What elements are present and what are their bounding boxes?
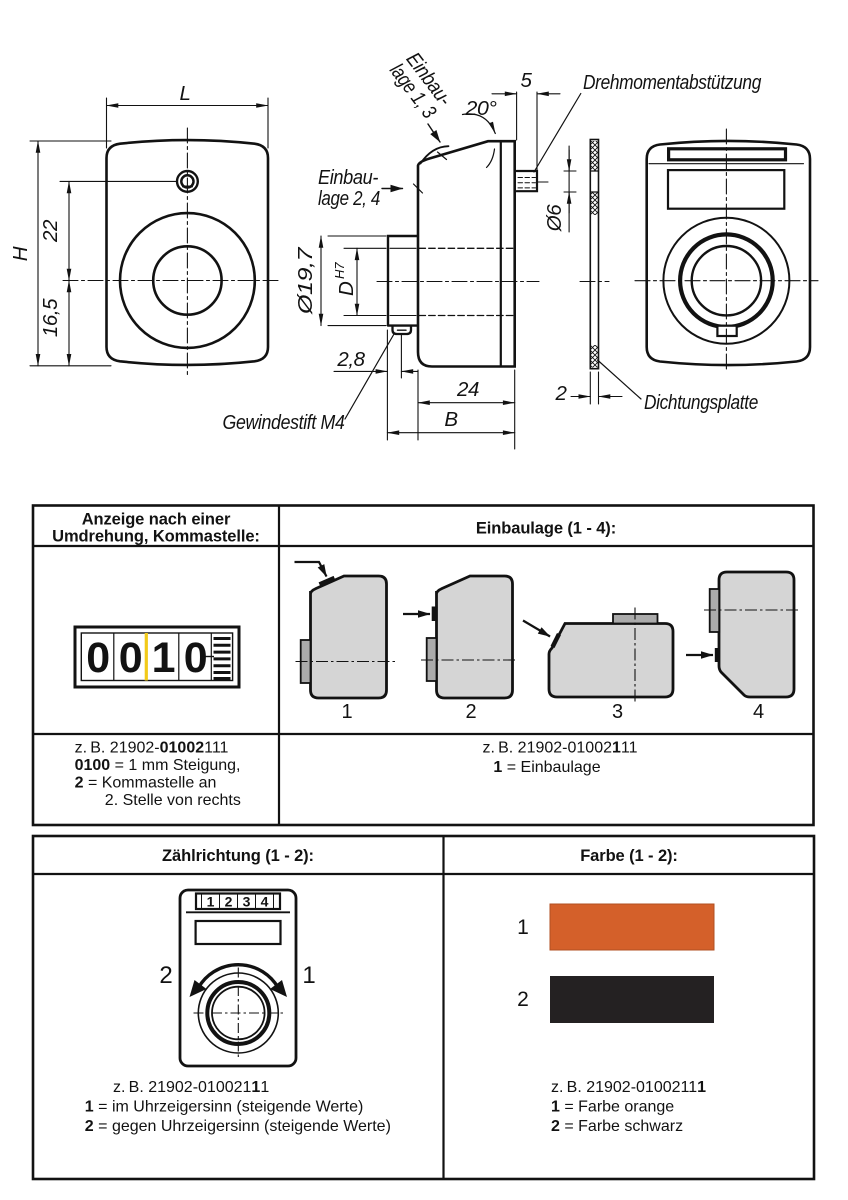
svg-text:2: 2 (517, 988, 529, 1011)
svg-text:Anzeige nach einer: Anzeige nach einer (82, 511, 231, 529)
svg-text:D: D (335, 281, 358, 296)
svg-text:Drehmomentabstützung: Drehmomentabstützung (583, 71, 762, 94)
svg-text:1: 1 (152, 634, 176, 682)
svg-text:z. B. 21902-01002111: z. B. 21902-01002111 (75, 740, 229, 757)
svg-text:Ø6: Ø6 (543, 204, 566, 233)
svg-text:1 = im Uhrzeigersinn (steigend: 1 = im Uhrzeigersinn (steigende Werte) (85, 1099, 364, 1116)
svg-text:Gewindestift M4: Gewindestift M4 (223, 411, 345, 434)
svg-text:2: 2 (159, 962, 172, 989)
svg-text:2,8: 2,8 (336, 348, 365, 371)
svg-text:1: 1 (302, 962, 315, 989)
svg-text:Einbau-: Einbau- (318, 166, 379, 189)
svg-text:Farbe (1 - 2):: Farbe (1 - 2): (580, 847, 678, 865)
svg-text:2: 2 (225, 894, 233, 910)
svg-text:16,5: 16,5 (39, 298, 62, 337)
svg-text:3: 3 (243, 894, 251, 910)
svg-text:2 = Farbe schwarz: 2 = Farbe schwarz (551, 1118, 683, 1135)
svg-text:2 = Kommastelle an: 2 = Kommastelle an (75, 775, 217, 792)
svg-text:Umdrehung, Kommastelle:: Umdrehung, Kommastelle: (52, 528, 260, 546)
svg-text:H: H (9, 246, 32, 261)
svg-text:0: 0 (119, 634, 143, 682)
svg-text:Zählrichtung (1 - 2):: Zählrichtung (1 - 2): (162, 847, 314, 865)
svg-text:1: 1 (341, 701, 352, 723)
svg-text:1: 1 (517, 916, 529, 939)
svg-text:Dichtungsplatte: Dichtungsplatte (644, 391, 758, 414)
svg-text:Ø19,7: Ø19,7 (294, 246, 317, 316)
svg-text:22: 22 (39, 219, 62, 243)
svg-text:5: 5 (520, 69, 532, 92)
svg-text:3: 3 (612, 701, 623, 723)
svg-text:4: 4 (261, 894, 269, 910)
svg-text:1 = Farbe orange: 1 = Farbe orange (551, 1099, 674, 1116)
svg-text:2. Stelle von rechts: 2. Stelle von rechts (105, 792, 241, 809)
svg-text:2 = gegen Uhrzeigersinn (steig: 2 = gegen Uhrzeigersinn (steigende Werte… (85, 1118, 391, 1135)
svg-text:lage 2, 4: lage 2, 4 (318, 187, 380, 210)
svg-text:z. B. 21902-01002111: z. B. 21902-01002111 (551, 1079, 706, 1096)
svg-text:0100 = 1 mm Steigung,: 0100 = 1 mm Steigung, (75, 757, 241, 774)
svg-text:L: L (179, 82, 190, 105)
svg-text:1 = Einbaulage: 1 = Einbaulage (493, 759, 600, 776)
svg-text:2: 2 (465, 701, 476, 723)
svg-text:B: B (444, 408, 457, 431)
svg-text:z. B. 21902-01002111: z. B. 21902-01002111 (482, 740, 637, 757)
svg-text:1: 1 (207, 894, 215, 910)
svg-text:z. B. 21902-01002111: z. B. 21902-01002111 (113, 1079, 269, 1096)
svg-text:H7: H7 (332, 262, 347, 279)
svg-text:0: 0 (184, 634, 208, 682)
svg-text:4: 4 (753, 701, 764, 723)
svg-text:0: 0 (86, 634, 110, 682)
svg-text:2: 2 (554, 382, 567, 405)
svg-text:Einbaulage (1 - 4):: Einbaulage (1 - 4): (476, 520, 616, 538)
svg-text:24: 24 (456, 378, 479, 401)
